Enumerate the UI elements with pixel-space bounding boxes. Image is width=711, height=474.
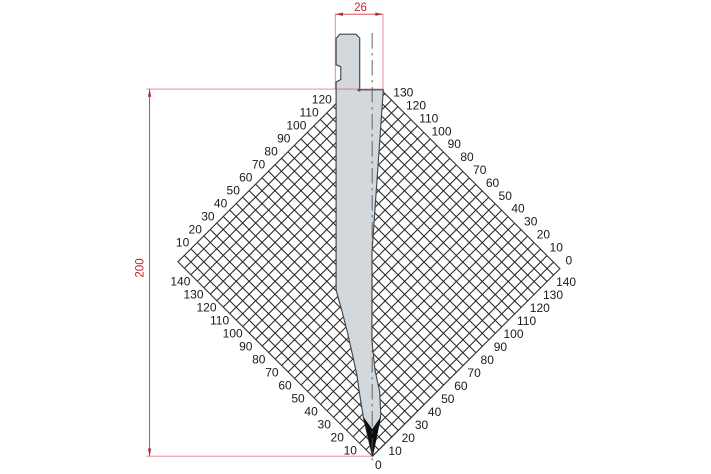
svg-text:30: 30 (201, 209, 215, 223)
svg-text:30: 30 (318, 418, 332, 432)
svg-text:110: 110 (419, 111, 438, 125)
svg-text:70: 70 (467, 366, 481, 380)
svg-text:26: 26 (354, 2, 367, 14)
svg-text:20: 20 (331, 431, 345, 445)
svg-text:50: 50 (291, 392, 305, 406)
svg-text:10: 10 (344, 444, 358, 458)
svg-text:130: 130 (183, 287, 203, 301)
svg-text:40: 40 (428, 405, 442, 419)
svg-text:110: 110 (300, 106, 319, 120)
svg-text:30: 30 (524, 215, 538, 229)
svg-text:50: 50 (441, 392, 455, 406)
svg-text:120: 120 (530, 301, 550, 315)
svg-text:100: 100 (503, 327, 523, 341)
svg-text:80: 80 (264, 144, 278, 158)
svg-text:90: 90 (277, 132, 291, 146)
svg-text:70: 70 (265, 366, 279, 380)
svg-text:130: 130 (393, 86, 413, 100)
svg-text:50: 50 (227, 183, 241, 197)
svg-text:10: 10 (388, 444, 402, 458)
svg-text:80: 80 (460, 150, 474, 164)
svg-text:40: 40 (511, 202, 525, 216)
svg-text:0: 0 (566, 253, 573, 267)
svg-text:80: 80 (481, 353, 495, 367)
svg-text:0: 0 (375, 458, 382, 472)
svg-text:70: 70 (473, 163, 487, 177)
svg-text:20: 20 (189, 222, 203, 236)
svg-text:90: 90 (494, 340, 508, 354)
svg-text:40: 40 (214, 196, 228, 210)
svg-text:130: 130 (543, 288, 563, 302)
svg-text:30: 30 (415, 418, 429, 432)
svg-text:10: 10 (550, 240, 564, 254)
svg-text:40: 40 (304, 405, 318, 419)
svg-text:80: 80 (252, 353, 266, 367)
svg-text:20: 20 (537, 228, 551, 242)
svg-text:100: 100 (223, 326, 243, 340)
svg-text:120: 120 (406, 99, 426, 113)
svg-text:100: 100 (286, 119, 306, 133)
svg-text:60: 60 (486, 176, 500, 190)
svg-text:200: 200 (135, 258, 147, 277)
svg-text:100: 100 (431, 124, 451, 138)
svg-text:140: 140 (556, 275, 576, 289)
svg-text:70: 70 (252, 157, 266, 171)
svg-text:60: 60 (454, 379, 468, 393)
svg-text:90: 90 (239, 339, 253, 353)
svg-text:140: 140 (170, 274, 190, 288)
svg-text:60: 60 (239, 170, 253, 184)
svg-text:110: 110 (517, 314, 536, 328)
svg-text:120: 120 (196, 300, 216, 314)
svg-text:90: 90 (448, 137, 462, 151)
svg-text:110: 110 (210, 313, 229, 327)
svg-text:20: 20 (402, 431, 416, 445)
svg-text:10: 10 (176, 235, 190, 249)
svg-text:120: 120 (312, 93, 332, 107)
svg-text:60: 60 (278, 379, 292, 393)
svg-text:50: 50 (499, 189, 513, 203)
